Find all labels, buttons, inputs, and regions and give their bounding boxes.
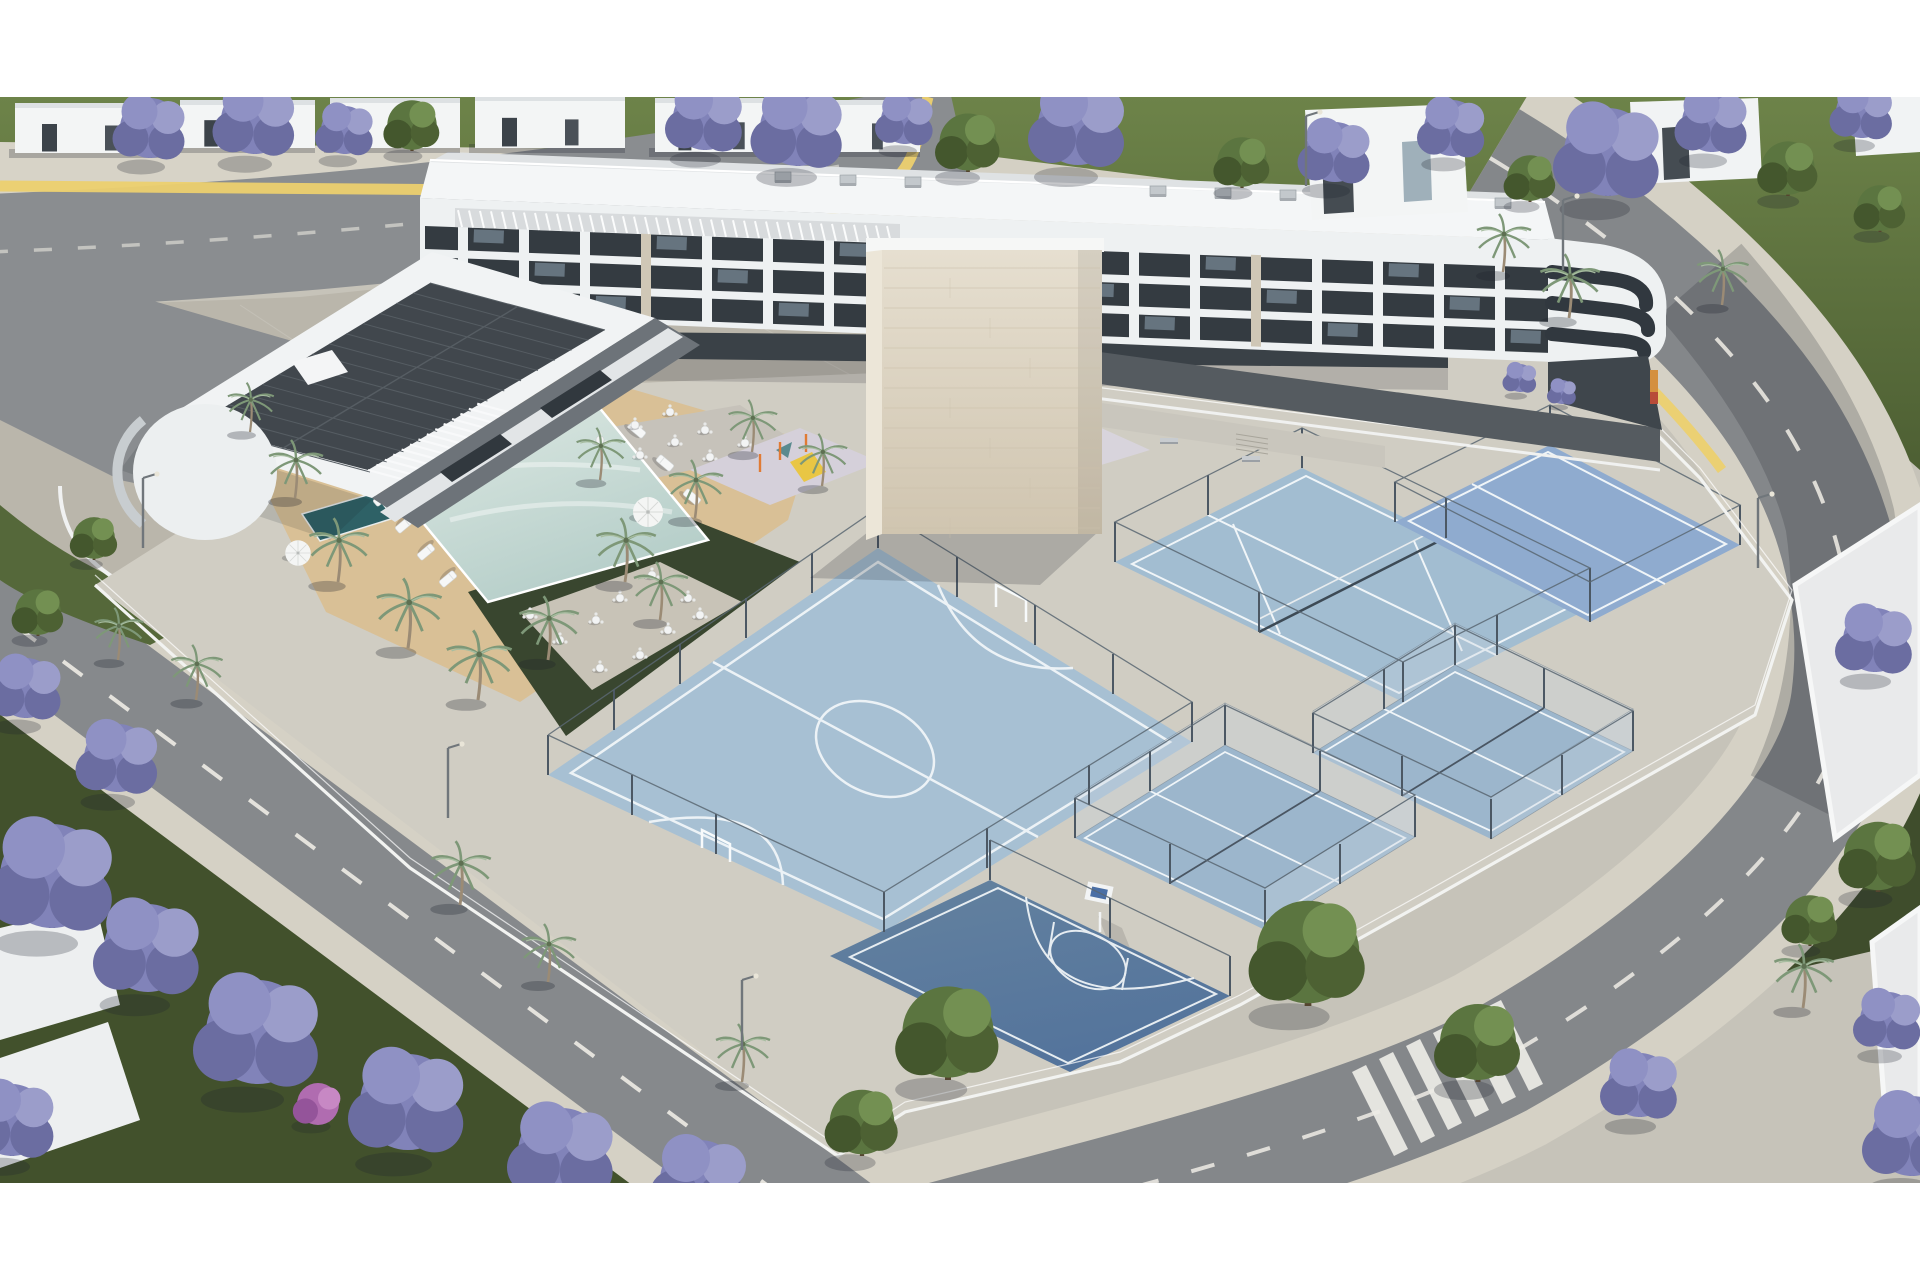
scene: [0, 79, 1920, 1262]
balcony-glazing: [474, 229, 504, 243]
facade-pier: [1129, 250, 1139, 342]
stone-tower: [866, 238, 1104, 540]
rooftop-ac-unit: [905, 177, 921, 188]
tower-face: [882, 250, 1102, 534]
balcony-glazing: [1206, 256, 1236, 270]
tower-side: [866, 250, 882, 540]
facade-pier: [641, 232, 651, 324]
balcony-glazing: [535, 263, 565, 277]
jacaranda-tree: [650, 1134, 746, 1242]
facade-pier: [1373, 259, 1383, 351]
background-house: [469, 96, 625, 153]
bench: [1242, 456, 1260, 462]
tower-cap: [866, 238, 1104, 252]
facade-pier: [763, 237, 773, 329]
facade-pier: [1434, 262, 1444, 354]
facade-pier: [702, 234, 712, 326]
shop-sign: [1650, 370, 1658, 392]
balcony-glazing: [1511, 330, 1541, 344]
jacaranda-tree: [507, 1101, 613, 1220]
balcony-glazing: [1328, 323, 1358, 337]
facade-pier: [1312, 257, 1322, 349]
facade-pier: [1190, 252, 1200, 344]
balcony-glazing: [718, 269, 748, 283]
bench: [1160, 438, 1178, 444]
balcony-glazing: [1450, 297, 1480, 311]
rooftop-ac-unit: [1150, 186, 1166, 197]
tower-edge-shade: [1078, 250, 1102, 534]
rooftop-ac-unit: [840, 175, 856, 186]
cylinder-end: [133, 404, 277, 540]
facade-pier: [824, 239, 834, 331]
aerial-site-render: [0, 0, 1920, 1280]
balcony-glazing: [840, 243, 870, 257]
rooftop-ac-unit: [1280, 190, 1296, 201]
facade-pier: [1251, 255, 1261, 347]
render-canvas: [0, 0, 1920, 1280]
balcony-glazing: [657, 236, 687, 250]
balcony-glazing: [779, 303, 809, 317]
shop-sign-lower: [1650, 392, 1658, 404]
balcony-glazing: [1389, 263, 1419, 277]
balcony-glazing: [1145, 316, 1175, 330]
balcony-glazing: [1267, 290, 1297, 304]
